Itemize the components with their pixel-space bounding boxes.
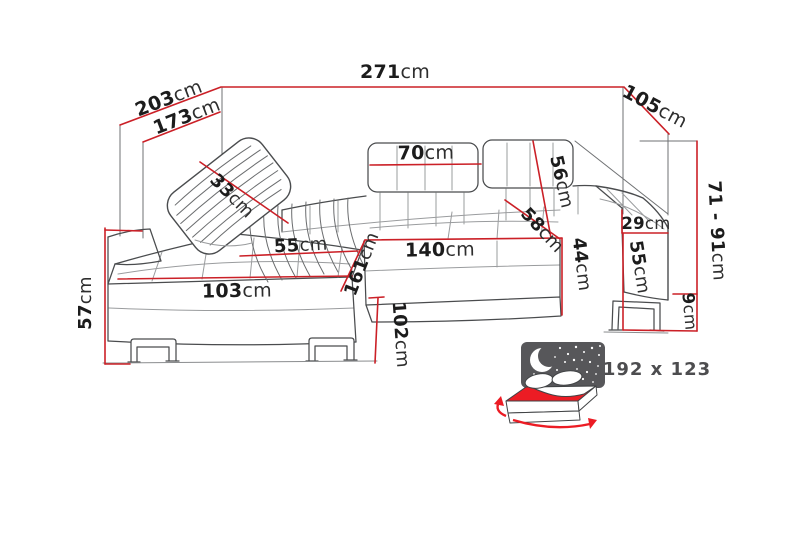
sofa-bed-function-icon: 192 x 123 [494,342,711,429]
sofa-dimension-diagram-page: 271cm 203cm 173cm 105cm 71 - 91cm 33cm 7… [0,0,800,533]
dim-back-height-range-label: 71 - 91cm [703,180,729,281]
dim-seat-width-label: 140cm [405,238,475,261]
dim-seat-depth-label: 58cm [516,203,568,257]
dim-chaise-seat-width-label: 55cm [273,234,328,258]
dim-chaise-front-width-label: 103cm [202,279,272,302]
dim-right-side-depth-label: 105cm [619,81,691,133]
dim-leg-height-label: 9cm [678,292,700,331]
dim-seat-height-label: 44cm [568,236,595,292]
dim-total-width-label: 271cm [360,61,430,83]
dim-front-corner-height-label: 57cm [75,276,96,330]
sofa-dimension-diagram: 271cm 203cm 173cm 105cm 71 - 91cm 33cm 7… [0,0,800,533]
dim-headrest-width-label: 70cm [397,142,454,165]
sleeping-area-size: 192 x 123 [603,359,711,380]
dim-chaise-side-height-label: 102cm [388,301,414,369]
dim-armrest-height-label: 55cm [625,239,654,295]
dim-armrest-above-seat-label: 29cm [621,214,670,233]
